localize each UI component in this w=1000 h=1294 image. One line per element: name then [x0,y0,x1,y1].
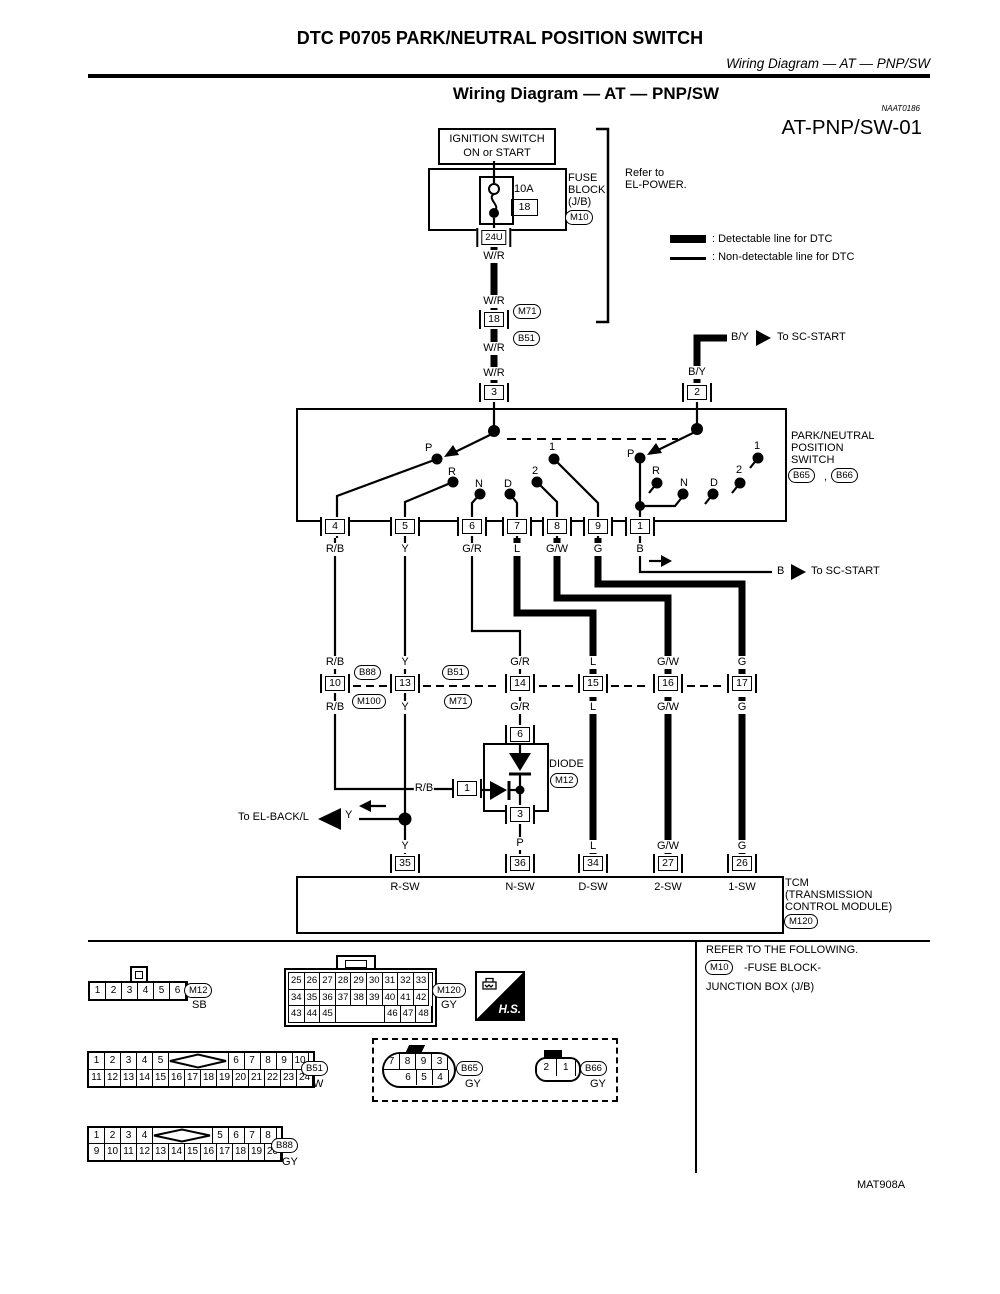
connector-oval-b88-face: B88 [271,1138,298,1153]
wire-label-b-2: B [776,565,785,578]
refer-el-power-line2: EL-POWER. [624,179,688,192]
dest-sc-start-bottom: To SC-START [810,565,881,578]
wire-label-gw-1: G/W [545,543,569,556]
terminal-3: 3 [479,383,509,402]
connector-oval-m100: M100 [352,694,386,709]
b65-color: GY [464,1078,482,1091]
wire-label-b-1: B [635,543,644,556]
wire-label-gr-3: G/R [509,701,531,714]
wire-label-wr-2: W/R [482,295,505,308]
pnp-switch-box [296,408,787,522]
terminal-35: 35 [390,854,420,873]
wire-label-rb-2: R/B [325,656,345,669]
wire-label-y-2: Y [400,656,409,669]
connector-oval-b65: B65 [788,468,815,483]
connector-oval-m120: M120 [784,914,818,929]
legend-detectable-label: : Detectable line for DTC [711,233,833,246]
wire-label-y-branch: Y [344,809,353,822]
connector-oval-m120-face: M120 [432,983,466,998]
contact-label-p-left: P [424,442,433,455]
wire-label-y-4: Y [400,840,409,853]
terminal-7: 7 [502,517,532,536]
b88-color: GY [281,1156,299,1169]
connector-oval-m12-face: M12 [184,983,212,998]
contact-label-2-left: 2 [531,465,539,478]
fuse-block-label3: (J/B) [567,196,592,209]
terminal-2: 2 [682,383,712,402]
dest-el-backl: To EL-BACK/L [237,811,310,824]
diode-label: DIODE [548,758,585,771]
connector-oval-m71: M71 [513,304,541,319]
wire-label-gw-4: G/W [656,840,680,853]
tcm-pin-name-rsw: R-SW [389,881,420,894]
refer-following-line2: -FUSE BLOCK- [743,962,822,975]
contact-label-n-right: N [679,477,689,490]
terminal-4: 4 [320,517,350,536]
wire-label-l-1: L [513,543,521,556]
b51-color: W [312,1078,324,1091]
ignition-switch-box: IGNITION SWITCH ON or START [438,128,556,165]
terminal-6: 6 [457,517,487,536]
tcm-box [296,876,784,934]
wire-label-by: B/Y [687,366,707,379]
connector-oval-b51: B51 [513,331,540,346]
terminal-14: 14 [505,674,535,693]
ignition-line1: IGNITION SWITCH [440,133,554,147]
wire-label-by-top: B/Y [730,331,750,344]
wire-label-wr-1: W/R [482,250,505,263]
terminal-15: 15 [578,674,608,693]
terminal-36: 36 [505,854,535,873]
wire-label-gw-2: G/W [656,656,680,669]
contact-label-n-left: N [474,478,484,491]
pnp-connector-separator: , [823,471,828,484]
wire-label-gr-2: G/R [509,656,531,669]
terminal-9: 9 [583,517,613,536]
refer-following-line1: REFER TO THE FOLLOWING. [705,944,859,957]
wire-label-g-4: G [737,840,748,853]
dest-sc-start-top: To SC-START [776,331,847,344]
wire-label-y-1: Y [400,543,409,556]
connector-oval-b66-face: B66 [580,1061,607,1076]
wire-label-wr-4: W/R [482,367,505,380]
connector-oval-m10: M10 [565,210,593,225]
legend-nondetectable-label: : Non-detectable line for DTC [711,251,855,264]
connector-oval-m12: M12 [550,773,578,788]
contact-label-d-right: D [709,477,719,490]
contact-label-2-right: 2 [735,464,743,477]
terminal-16: 16 [653,674,683,693]
fuse-box [479,176,514,225]
wire-label-rb-1: R/B [325,543,345,556]
terminal-18: 18 [479,310,509,329]
connector-oval-b88: B88 [354,665,381,680]
ignition-line2: ON or START [440,147,554,161]
el-power-bracket [596,129,608,322]
wire-label-p: P [515,837,524,850]
wire-label-g-2: G [737,656,748,669]
terminal-17: 17 [727,674,757,693]
m120-color: GY [440,999,458,1012]
wire-label-g-3: G [737,701,748,714]
tcm-pin-name-1sw: 1-SW [727,881,757,894]
connector-oval-b65-face: B65 [456,1061,483,1076]
terminal-26: 26 [727,854,757,873]
fuse-rating-label: 10A [513,183,535,196]
wire-label-l-2: L [589,656,597,669]
terminal-34: 34 [578,854,608,873]
terminal-27: 27 [653,854,683,873]
terminal-10: 10 [320,674,350,693]
contact-label-r-left: R [447,466,457,479]
connector-oval-b51-mid: B51 [442,665,469,680]
tcm-pin-name-2sw: 2-SW [653,881,683,894]
wire-label-rb-3: R/B [325,701,345,714]
m12-color: SB [191,999,208,1012]
terminal-8: 8 [542,517,572,536]
contact-label-1-left: 1 [548,441,556,454]
wire-label-y-3: Y [400,701,409,714]
connector-oval-b51-face: B51 [301,1061,328,1076]
tcm-pin-name-dsw: D-SW [577,881,608,894]
wire-label-gr-1: G/R [461,543,483,556]
wire-label-rb-4: R/B [414,782,434,795]
figure-code: MAT908A [856,1179,906,1192]
contact-label-d-left: D [503,478,513,491]
wiring-diagram-page: DTC P0705 PARK/NEUTRAL POSITION SWITCH W… [0,0,1000,1294]
tcm-pin-name-nsw: N-SW [504,881,535,894]
terminal-24u: 24U [476,228,511,247]
refer-following-line3: JUNCTION BOX (J/B) [705,981,815,994]
diode-box [483,743,549,812]
connector-oval-b66: B66 [831,468,858,483]
wire-label-l-4: L [589,840,597,853]
terminal-5: 5 [390,517,420,536]
terminal-13: 13 [390,674,420,693]
diode-terminal-6: 6 [505,725,535,744]
wire-label-gw-3: G/W [656,701,680,714]
diode-terminal-3: 3 [505,805,535,824]
connector-oval-m71-mid: M71 [444,694,472,709]
contact-label-r-right: R [651,465,661,478]
diode-terminal-1: 1 [452,779,482,798]
wire-label-wr-3: W/R [482,342,505,355]
terminal-1: 1 [625,517,655,536]
pnp-label-line3: SWITCH [790,454,835,467]
wire-label-g-1: G [593,543,604,556]
connector-oval-m10-refer: M10 [705,960,733,975]
wire-label-l-3: L [589,701,597,714]
tcm-label-line3: CONTROL MODULE) [784,901,893,914]
contact-label-1-right: 1 [753,440,761,453]
b66-color: GY [589,1078,607,1091]
contact-label-p-right: P [626,448,635,461]
